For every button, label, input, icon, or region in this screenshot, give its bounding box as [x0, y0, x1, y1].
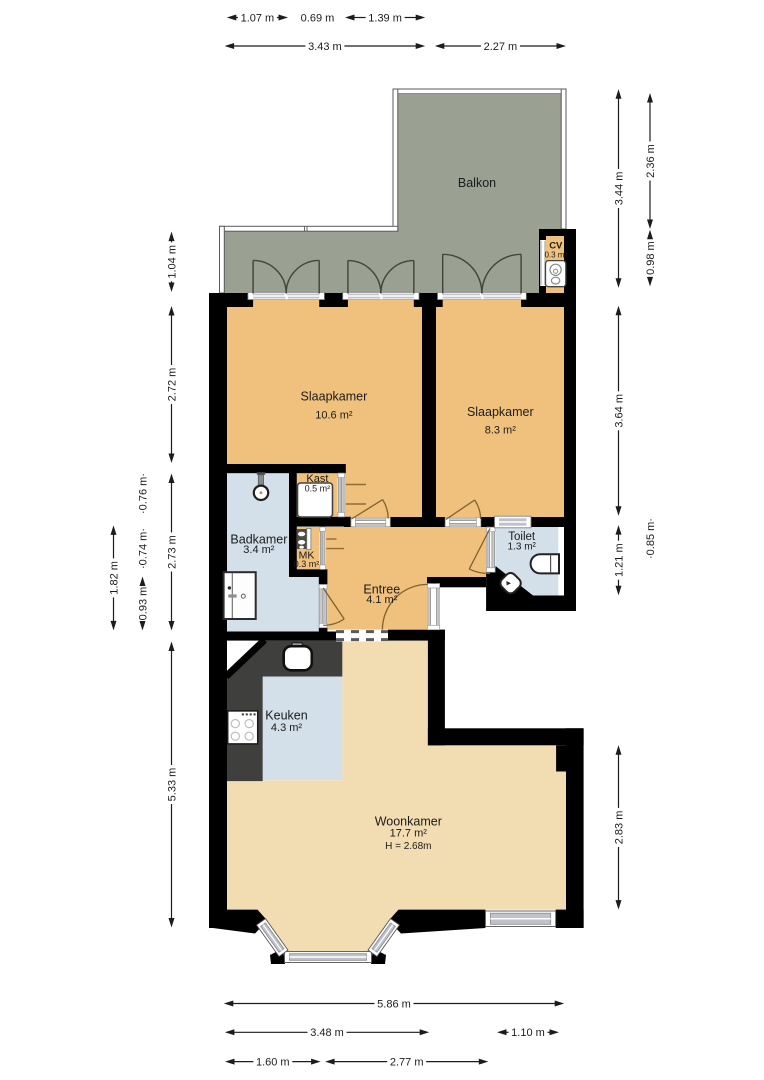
svg-text:1.04 m: 1.04 m	[166, 245, 178, 279]
svg-text:4.3 m²: 4.3 m²	[271, 722, 303, 734]
svg-text:1.10 m: 1.10 m	[511, 1027, 545, 1039]
svg-text:Slaapkamer: Slaapkamer	[301, 389, 368, 403]
svg-text:10.6 m²: 10.6 m²	[315, 409, 353, 421]
svg-text:3.4 m²: 3.4 m²	[243, 544, 275, 556]
svg-text:2.83 m: 2.83 m	[613, 811, 625, 845]
svg-text:H = 2.68m: H = 2.68m	[385, 841, 431, 852]
svg-text:17.7 m²: 17.7 m²	[390, 828, 428, 840]
svg-text:3.64 m: 3.64 m	[613, 394, 625, 428]
svg-text:·0.85 m·: ·0.85 m·	[645, 518, 657, 559]
svg-text:1.39 m: 1.39 m	[368, 12, 402, 24]
svg-text:3.44 m: 3.44 m	[613, 172, 625, 206]
svg-text:2.27 m: 2.27 m	[484, 41, 518, 53]
svg-text:8.3 m²: 8.3 m²	[485, 424, 517, 436]
svg-text:0.3 m²: 0.3 m²	[544, 251, 567, 260]
svg-text:Keuken: Keuken	[265, 709, 307, 723]
svg-text:Balkon: Balkon	[458, 176, 496, 190]
svg-text:4.1 m²: 4.1 m²	[366, 594, 398, 606]
svg-text:2.72 m: 2.72 m	[166, 368, 178, 402]
svg-text:0.93 m: 0.93 m	[137, 587, 149, 621]
svg-text:5.86 m: 5.86 m	[377, 998, 411, 1010]
svg-text:1.21 m: 1.21 m	[613, 543, 625, 577]
svg-text:2.77 m: 2.77 m	[390, 1057, 424, 1069]
svg-text:5.33 m: 5.33 m	[166, 768, 178, 802]
svg-text:3.43 m: 3.43 m	[308, 41, 342, 53]
svg-text:0.98 m: 0.98 m	[645, 241, 657, 275]
svg-text:1.3 m²: 1.3 m²	[508, 541, 537, 552]
svg-text:0.3 m²: 0.3 m²	[294, 559, 320, 569]
svg-text:2.36 m: 2.36 m	[645, 144, 657, 178]
svg-text:·0.76 m·: ·0.76 m·	[137, 473, 149, 514]
svg-text:3.48 m: 3.48 m	[310, 1027, 344, 1039]
svg-text:1.60 m: 1.60 m	[256, 1057, 290, 1069]
svg-text:Slaapkamer: Slaapkamer	[467, 405, 534, 419]
svg-text:Woonkamer: Woonkamer	[375, 814, 442, 828]
svg-text:2.73 m: 2.73 m	[166, 535, 178, 569]
svg-text:1.07 m: 1.07 m	[241, 12, 275, 24]
svg-text:0.5 m²: 0.5 m²	[305, 484, 331, 494]
svg-text:1.82 m: 1.82 m	[108, 561, 120, 595]
svg-text:0.69 m: 0.69 m	[301, 12, 335, 24]
svg-text:·0.74 m·: ·0.74 m·	[137, 528, 149, 569]
